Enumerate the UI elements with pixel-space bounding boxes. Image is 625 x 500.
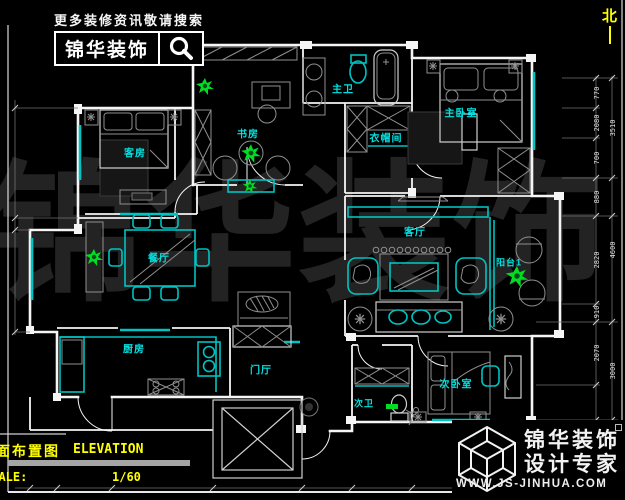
brand-logo-box: 锦华装饰 [54, 31, 204, 66]
room-label-balcony: 阳台1 [496, 256, 522, 269]
dim-total-2: 3000 [609, 363, 617, 380]
dim-total-1: 4600 [609, 242, 617, 259]
registered-mark-icon [615, 424, 622, 431]
room-label-kitchen: 厨房 [123, 341, 145, 356]
footer-brand-block: 锦华装饰 设计专家 WWW.JS-JINHUA.COM [452, 420, 625, 500]
interior-walls [30, 45, 532, 430]
brand-name: 锦华装饰 [56, 33, 158, 64]
scale-label: SCALE: [0, 470, 27, 484]
room-label-second-bath: 次卫 [354, 397, 374, 410]
dim-segment-3: 880 [593, 191, 601, 204]
dining-furniture [85, 215, 209, 300]
drawing-title-en: ELEVATION [73, 442, 143, 457]
room-label-foyer: 门厅 [250, 362, 272, 377]
dim-segment-4: 2820 [593, 252, 601, 269]
dim-total-0: 3510 [609, 120, 617, 137]
shower-mat [386, 404, 398, 409]
drawing-title-cn: 平面布置图 [0, 441, 60, 461]
title-divider-bar [8, 460, 190, 466]
balcony-furniture [506, 237, 545, 306]
room-label-second-bedroom: 次卧室 [440, 376, 473, 391]
room-label-guest-room: 客房 [124, 145, 146, 160]
living-room-furniture [348, 197, 513, 332]
outer-walls [30, 45, 560, 431]
room-label-master-bath: 主卫 [332, 81, 354, 96]
room-label-master-bedroom: 主卧室 [445, 105, 478, 120]
cad-floorplan-canvas: 锦华装饰 [0, 0, 625, 500]
dim-segment-6: 2070 [593, 345, 601, 362]
north-indicator: 北 [602, 5, 617, 44]
elevator-shaft [213, 400, 302, 478]
search-note: 更多装修资讯敬请搜索 [54, 10, 204, 29]
room-label-living: 客厅 [404, 224, 426, 239]
room-label-dining: 餐厅 [148, 250, 170, 265]
scale-value: 1/60 [112, 470, 141, 484]
study-furniture [195, 47, 297, 193]
dim-segment-2: 700 [593, 152, 601, 165]
room-label-closet: 衣帽间 [370, 130, 403, 145]
guest-room-furniture [85, 110, 181, 214]
north-label: 北 [602, 8, 617, 25]
dim-segment-1: 2080 [593, 115, 601, 132]
magnifier-icon [160, 33, 202, 64]
dim-segment-0: 770 [593, 87, 601, 100]
footer-brand-line2: 设计专家 [524, 448, 620, 478]
footer-website: WWW.JS-JINHUA.COM [456, 478, 607, 490]
room-label-study: 书房 [237, 126, 259, 141]
dim-segment-5: 910 [593, 306, 601, 319]
